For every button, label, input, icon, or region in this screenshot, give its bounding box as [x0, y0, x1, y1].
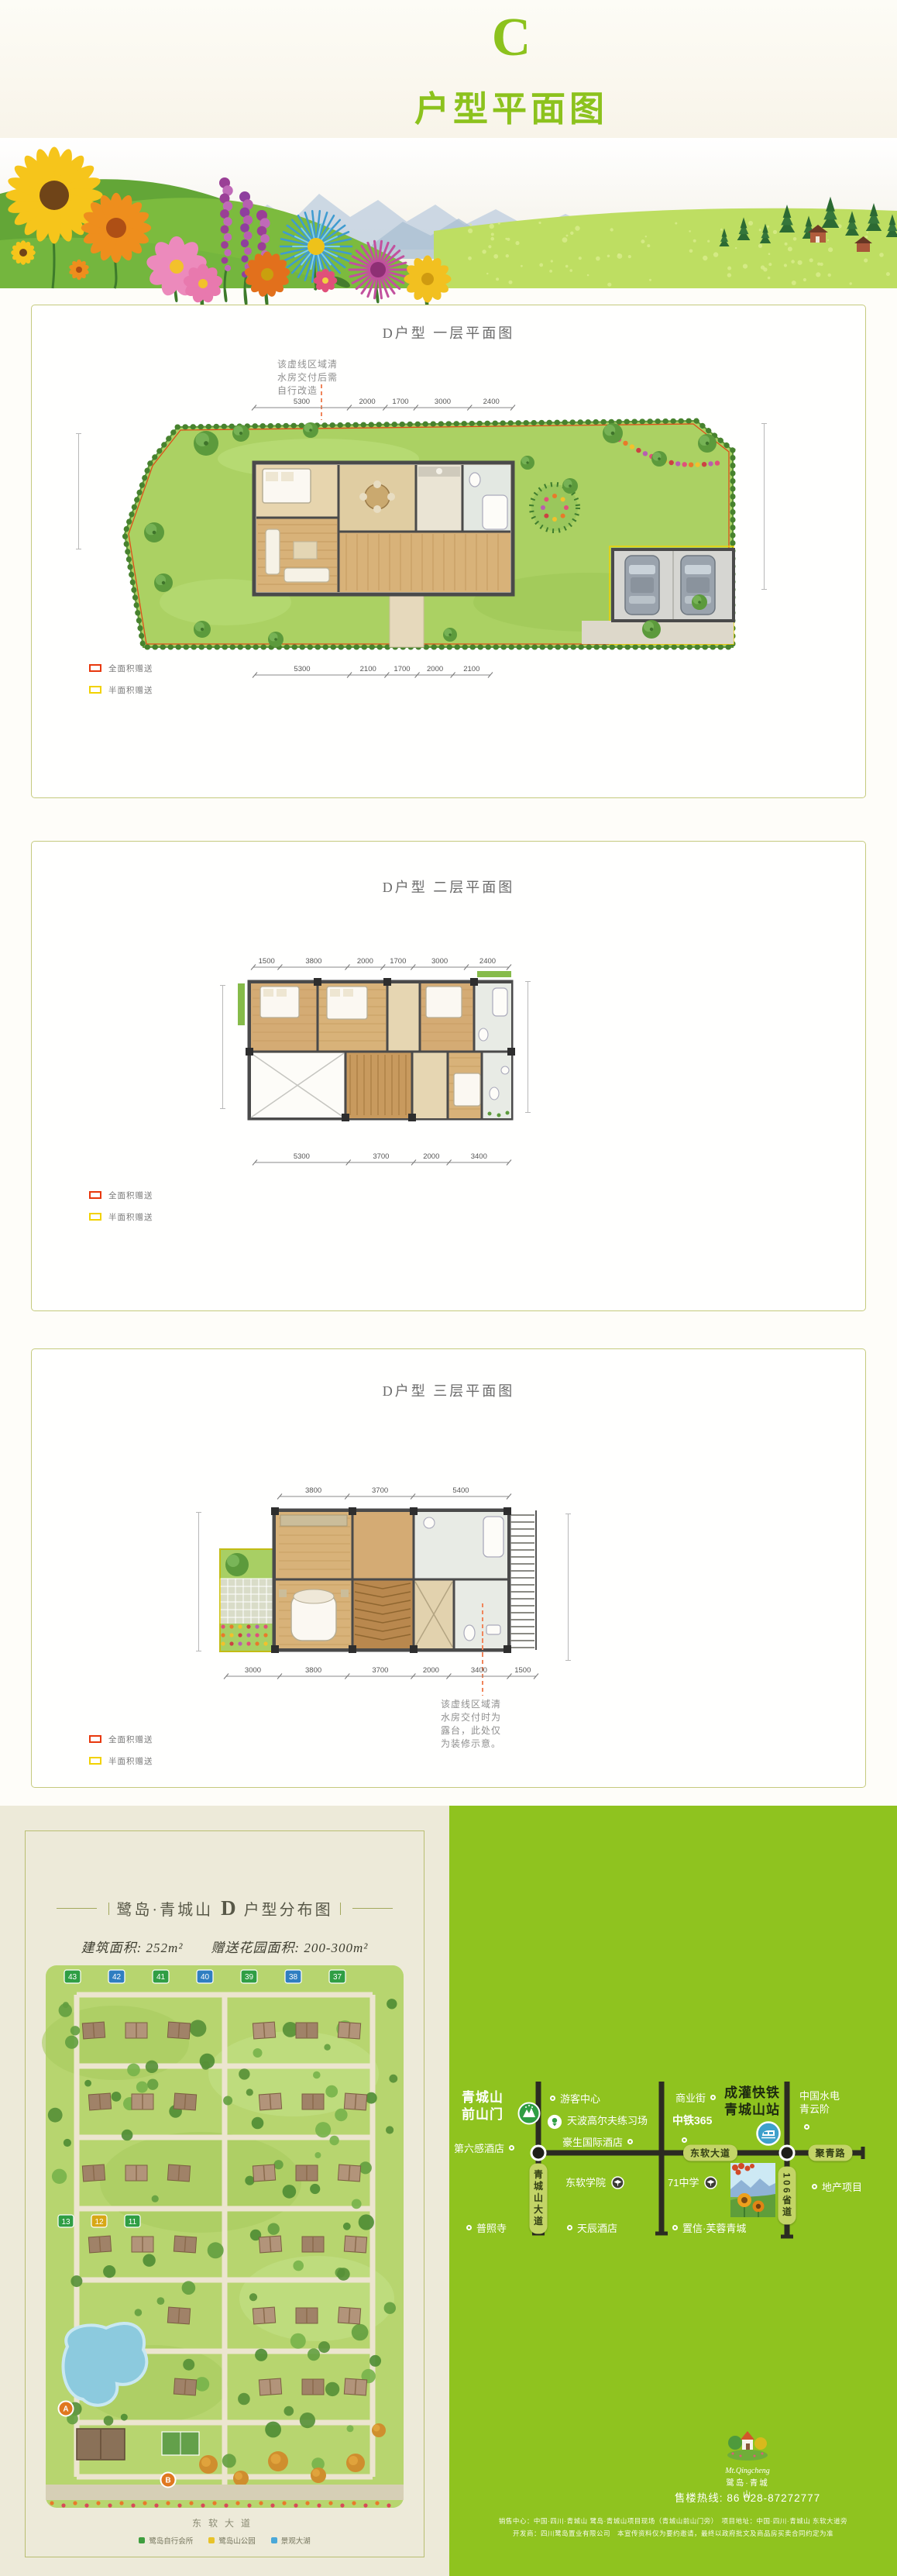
title-bar [340, 1903, 341, 1915]
svg-text:13: 13 [61, 2218, 70, 2226]
legend-label: 全面积赠送 [108, 1734, 153, 1745]
svg-text:3700: 3700 [372, 1666, 388, 1675]
poi-qingcheng-front-gate: 青城山前山门 [462, 2089, 503, 2123]
legend-swatch [89, 1213, 101, 1221]
poi-label: 天辰酒店 [577, 2222, 617, 2235]
poi-business-street: 商业街 [675, 2092, 716, 2105]
svg-text:12: 12 [95, 2218, 104, 2226]
zone-marker: B [161, 2473, 176, 2488]
svg-text:1500: 1500 [514, 1666, 531, 1675]
svg-text:5300: 5300 [294, 665, 310, 673]
svg-text:B: B [165, 2477, 170, 2485]
svg-text:3800: 3800 [305, 957, 321, 966]
plot-badge: 37 [329, 1970, 345, 1983]
svg-text:3700: 3700 [372, 1486, 388, 1495]
svg-text:37: 37 [333, 1973, 342, 1982]
svg-text:2000: 2000 [357, 957, 373, 966]
poi-station-train-icon [756, 2121, 781, 2146]
poi-label: 天波高尔夫练习场 [567, 2114, 648, 2127]
road-label-pill: 青城山大道 [530, 2164, 548, 2234]
poi-label: 成灌快铁青城山站 [724, 2085, 780, 2119]
poi-dot-icon [466, 2225, 472, 2230]
balcony-planter [238, 983, 245, 1025]
plot-badge: 41 [153, 1970, 169, 1983]
poi-label: 置信·芙蓉青城 [682, 2222, 746, 2235]
legend-label: 半面积赠送 [108, 1755, 153, 1767]
site-legend-item: 鹭岛山公园 [208, 2535, 256, 2546]
svg-text:2000: 2000 [359, 398, 376, 406]
train-icon [756, 2121, 781, 2146]
poi-label: 71中学 [668, 2176, 699, 2189]
floor-panel-2: D户型 二层平面图 150038002000170030002400 [31, 841, 866, 1311]
svg-text:3400: 3400 [471, 1666, 487, 1675]
poi-no71-school: 71中学 [668, 2176, 717, 2192]
gift-area-legend: 全面积赠送 半面积赠送 [89, 1189, 153, 1232]
road-label-pill: 东软大道 [683, 2145, 737, 2161]
project-thumbnail [730, 2163, 775, 2221]
poi-label: 地产项目 [822, 2181, 862, 2194]
poi-golf-range: 天波高尔夫练习场 [547, 2114, 648, 2133]
svg-text:5400: 5400 [452, 1486, 469, 1495]
svg-text:3000: 3000 [435, 398, 451, 406]
floor-plan-3-illustration [214, 1504, 551, 1656]
poi-label: 普照寺 [476, 2222, 507, 2235]
site-legend-swatch [271, 2537, 277, 2543]
renovation-note: 该虚线区域清水房交付后需自行改造 [277, 358, 352, 398]
road-junction [531, 2146, 545, 2160]
plot-badge: 38 [285, 1970, 301, 1983]
svg-text:43: 43 [68, 1973, 77, 1982]
poi-dot-icon [550, 2096, 555, 2101]
poi-label: 中铁365 [672, 2114, 712, 2127]
school-icon [704, 2176, 717, 2189]
poi-zhongtie-dot [682, 2134, 692, 2143]
distribution-box: 鹭岛·青城山 D 户型分布图 建筑面积: 252m² 赠送花园面积: 200-3… [25, 1830, 424, 2557]
zone-marker: A [59, 2402, 74, 2416]
poi-haosheng-hotel: 豪生国际酒店 [562, 2136, 633, 2149]
section-letter: C [434, 8, 589, 68]
golf-icon [547, 2114, 562, 2130]
poi-dot-icon [509, 2145, 514, 2151]
svg-text:1700: 1700 [392, 398, 408, 406]
title-dash [352, 1908, 393, 1909]
dimension-line-bottom: 300038003700200034001500 [226, 1665, 536, 1681]
poi-puzhao-temple: 普照寺 [466, 2222, 507, 2235]
poi-tianchen-hotel: 天辰酒店 [567, 2222, 617, 2235]
logo-icon [725, 2423, 770, 2461]
dimension-line-bottom: 53002100170020002100 [255, 664, 490, 680]
site-legend-swatch [139, 2537, 145, 2543]
poi-zhixin-furong: 置信·芙蓉青城 [672, 2222, 746, 2235]
poi-label: 第六感酒店 [454, 2142, 504, 2155]
logo-script: Mt.Qingcheng [722, 2467, 773, 2475]
poi-label: 游客中心 [560, 2092, 600, 2106]
legend-swatch [89, 1735, 101, 1743]
title-dash [57, 1908, 97, 1909]
legend-swatch [89, 1191, 101, 1199]
svg-text:3800: 3800 [305, 1486, 321, 1495]
area-info: 建筑面积: 252m² 赠送花园面积: 200-300m² [26, 1937, 424, 1956]
road-label-pill: 106省道 [778, 2166, 796, 2224]
plot-badge: 40 [197, 1970, 213, 1983]
mountain-icon [517, 2102, 541, 2125]
vertical-dimension [222, 985, 223, 1109]
school-icon [611, 2176, 624, 2189]
page-title: 户型平面图 [356, 81, 666, 131]
poi-zhongtie-365: 中铁365 [672, 2114, 712, 2127]
poi-dot-icon [710, 2095, 716, 2100]
poi-dot-icon [627, 2139, 633, 2144]
brochure-page: C 户型平面图 D户型 一层平面图 该虚线区域清水房交付后需自行改造 53002… [0, 0, 897, 2576]
site-legend-item: 鹭岛自行会所 [139, 2535, 193, 2546]
legend-item: 半面积赠送 [89, 1211, 153, 1223]
dimension-line-top: 150038002000170030002400 [253, 956, 509, 972]
banner-illustration [0, 138, 897, 288]
svg-text:11: 11 [129, 2218, 137, 2226]
svg-text:2400: 2400 [483, 398, 500, 406]
terrace-note: 该虚线区域清水房交付时为露台，此处仅为装修示意。 [441, 1698, 515, 1751]
svg-text:38: 38 [289, 1973, 298, 1982]
distribution-panel: 鹭岛·青城山 D 户型分布图 建筑面积: 252m² 赠送花园面积: 200-3… [0, 1806, 449, 2576]
legend-label: 半面积赠送 [108, 1211, 153, 1223]
poi-hydro-qingyunjie: 中国水电青云阶 [799, 2089, 840, 2116]
vertical-dimension [78, 433, 79, 549]
poi-dot-icon [567, 2225, 572, 2230]
garage [613, 549, 734, 621]
poi-sixth-sense-hotel: 第六感酒店 [454, 2142, 514, 2155]
svg-text:2000: 2000 [423, 1666, 439, 1675]
legend-item: 半面积赠送 [89, 684, 153, 696]
poi-dot-icon [804, 2124, 809, 2130]
site-map-road-label: 东软大道 [26, 2516, 424, 2530]
svg-text:2100: 2100 [463, 665, 479, 673]
site-legend-swatch [208, 2537, 215, 2543]
sales-hotline: 售楼热线: 86 028-87272777 [593, 2489, 897, 2505]
floor-panel-3: D户型 三层平面图 380037005400 [31, 1348, 866, 1788]
floor-plan-1-illustration [117, 416, 737, 669]
road-junction [780, 2146, 794, 2160]
floor-panel-1: D户型 一层平面图 该虚线区域清水房交付后需自行改造 5300200017003… [31, 305, 866, 798]
balcony-railing [510, 1515, 534, 1648]
poi-gate-mountain-icon [517, 2102, 541, 2125]
svg-text:5300: 5300 [294, 398, 310, 406]
legend-item: 全面积赠送 [89, 1189, 153, 1201]
gift-area-legend: 全面积赠送 半面积赠送 [89, 1733, 153, 1776]
poi-hydro-dot [804, 2121, 814, 2130]
poi-real-estate-project: 地产项目 [812, 2181, 862, 2194]
page-header: C 户型平面图 [0, 0, 897, 138]
legend-item: 全面积赠送 [89, 662, 153, 674]
svg-text:5300: 5300 [294, 1152, 310, 1161]
svg-text:A: A [63, 2406, 68, 2414]
fine-print-line: 开发商：四川鹭岛置业有限公司 本宣传资料仅为要约邀请，最终以政府批文及商品房买卖… [457, 2527, 889, 2540]
svg-text:3400: 3400 [471, 1152, 487, 1161]
plot-badge: 13 [58, 2215, 74, 2227]
svg-text:40: 40 [201, 1973, 210, 1982]
site-legend-item: 景观大湖 [271, 2535, 311, 2546]
vertical-dimension [568, 1514, 569, 1661]
poi-label: 中国水电青云阶 [799, 2089, 840, 2116]
plot-badge: 43 [64, 1970, 81, 1983]
site-map-illustration: 43424140393837131211AB [46, 1965, 404, 2508]
poi-chengguan-station: 成灌快铁青城山站 [724, 2085, 780, 2119]
fine-print-line: 销售中心：中国·四川·青城山 鹭岛·青城山项目现场（青城山前山门旁） 项目地址：… [457, 2515, 889, 2527]
svg-text:2000: 2000 [427, 665, 443, 673]
svg-text:39: 39 [245, 1973, 254, 1982]
plot-badge: 12 [91, 2215, 107, 2227]
poi-dot-icon [682, 2137, 687, 2143]
panel-1-title: D户型 一层平面图 [32, 322, 865, 343]
svg-text:3800: 3800 [305, 1666, 321, 1675]
poi-label: 豪生国际酒店 [562, 2136, 623, 2149]
legend-label: 全面积赠送 [108, 663, 153, 674]
svg-text:2100: 2100 [360, 665, 376, 673]
svg-text:42: 42 [112, 1973, 122, 1982]
plot-badge: 39 [241, 1970, 257, 1983]
distribution-title: 鹭岛·青城山 D 户型分布图 [26, 1896, 424, 1920]
title-suffix: 户型分布图 [244, 1897, 333, 1920]
poi-visitor-center: 游客中心 [550, 2092, 600, 2106]
poi-label: 青城山前山门 [462, 2089, 503, 2123]
svg-text:2400: 2400 [479, 957, 496, 966]
vertical-dimension [198, 1512, 199, 1651]
site-map-legend: 鹭岛自行会所鹭岛山公园景观大湖 [26, 2535, 424, 2546]
legend-label: 半面积赠送 [108, 684, 153, 696]
svg-text:3000: 3000 [245, 1666, 261, 1675]
panel-2-title: D户型 二层平面图 [32, 876, 865, 897]
svg-text:1700: 1700 [394, 665, 410, 673]
legend-item: 全面积赠送 [89, 1733, 153, 1745]
orange-dashed-line [482, 1632, 483, 1696]
poi-dongruan-college: 东软学院 [565, 2176, 624, 2192]
house-floorplan [254, 463, 513, 594]
svg-text:41: 41 [156, 1973, 166, 1982]
svg-text:3000: 3000 [431, 957, 448, 966]
floor-plan-2-illustration [245, 977, 524, 1124]
poi-dot-icon [812, 2184, 817, 2189]
brand-logo: Mt.Qingcheng 鹭岛·青城山 [722, 2423, 773, 2500]
plot-badge: 42 [108, 1970, 125, 1983]
svg-text:1500: 1500 [259, 957, 275, 966]
svg-text:3700: 3700 [373, 1152, 389, 1161]
dimension-line-bottom: 5300370020003400 [255, 1152, 509, 1167]
location-map-panel: 东软大道聚青路青城山大道106省道 青城山前山门游客中心天波高尔夫练习场豪生国际… [449, 1806, 897, 2576]
title-bar [108, 1903, 109, 1915]
poi-label: 商业街 [675, 2092, 706, 2105]
legend-swatch [89, 686, 101, 694]
dimension-line-top: 380037005400 [280, 1486, 509, 1501]
brand-name: 鹭岛·青城山 [116, 1897, 213, 1920]
legend-swatch [89, 664, 101, 672]
bottom-section: 鹭岛·青城山 D 户型分布图 建筑面积: 252m² 赠送花园面积: 200-3… [0, 1806, 897, 2576]
svg-text:1700: 1700 [390, 957, 406, 966]
poi-label: 东软学院 [565, 2176, 606, 2189]
vertical-dimension [528, 981, 528, 1113]
panel-3-title: D户型 三层平面图 [32, 1380, 865, 1400]
type-letter: D [221, 1896, 236, 1920]
legend-item: 半面积赠送 [89, 1755, 153, 1767]
poi-dot-icon [672, 2225, 678, 2230]
vertical-dimension [764, 423, 765, 590]
legend-label: 全面积赠送 [108, 1190, 153, 1201]
road-label-pill: 聚青路 [808, 2145, 852, 2161]
dimension-line-top: 53002000170030002400 [254, 397, 513, 412]
legend-swatch [89, 1757, 101, 1765]
svg-text:2000: 2000 [423, 1152, 439, 1161]
gift-area-legend: 全面积赠送 半面积赠送 [89, 662, 153, 705]
plot-badge: 11 [125, 2215, 140, 2227]
